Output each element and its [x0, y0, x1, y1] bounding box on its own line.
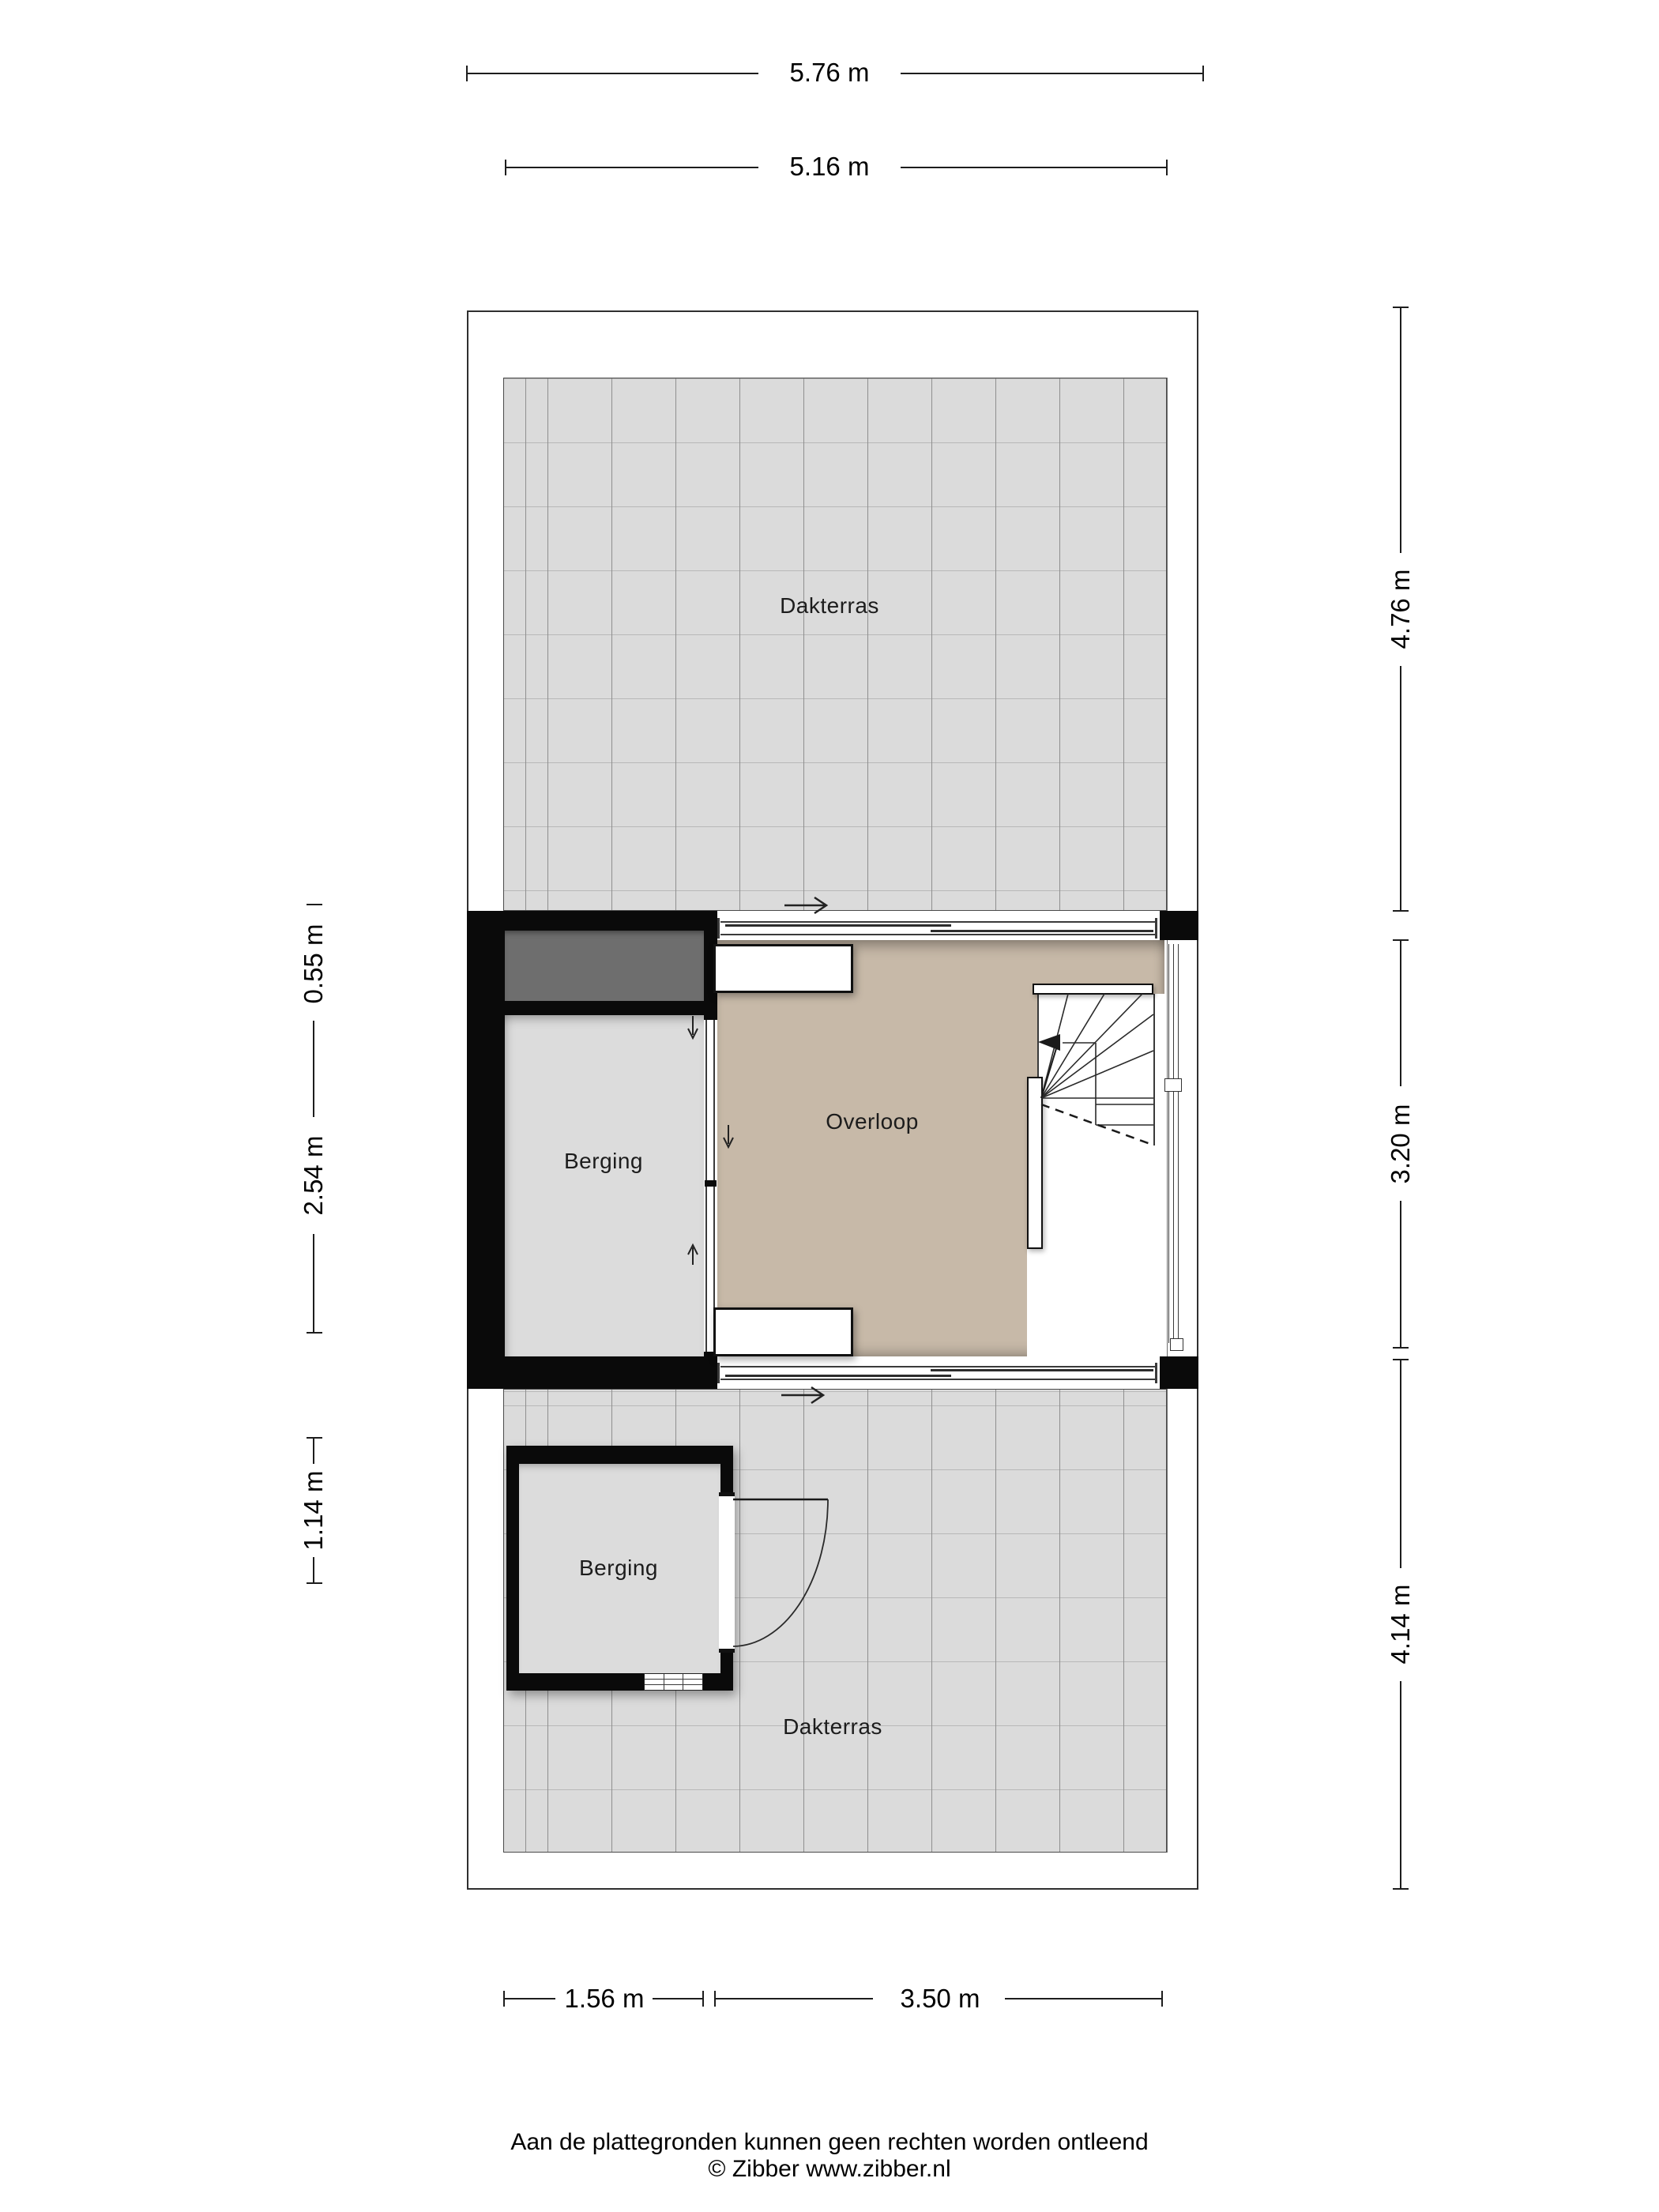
dim-top-inner-line-b [901, 167, 1167, 168]
dim-left-low-tick-top [307, 1437, 322, 1439]
dim-right-mid-label: 3.20 m [1386, 1104, 1416, 1184]
dim-right-top-tick-t [1393, 307, 1409, 308]
slidedoor-vertical-post-top [704, 1015, 717, 1020]
slidedoor-bottom-leaf-a [725, 1375, 951, 1377]
slidedoor-top-cap-l [717, 918, 720, 939]
dim-bottom-left-tick-r [702, 1991, 704, 2007]
dim-right-top-tick-b [1393, 910, 1409, 912]
floorplan-page: 5.76 m 5.16 m 4.76 m 3.20 m 4.14 m 0.55 … [0, 0, 1659, 2212]
dim-bottom-right-line-a [715, 1998, 873, 1999]
dim-right-mid-line-a [1400, 940, 1401, 1086]
window-right-line-1a [1168, 944, 1169, 1078]
door-panel-bottom [713, 1307, 853, 1356]
window-right-line-2b [1173, 1092, 1174, 1343]
dim-top-outer-line-b [901, 73, 1204, 74]
dim-top-inner-tick-l [505, 160, 506, 175]
label-dakterras-top: Dakterras [780, 593, 879, 619]
slidedoor-bottom-cap-r [1155, 1363, 1157, 1383]
stair-right-edge [1153, 994, 1155, 1145]
copyright-text: © Zibber www.zibber.nl [708, 2156, 950, 2183]
dim-top-inner-tick-r [1166, 160, 1168, 175]
dim-top-outer-tick-r [1202, 66, 1204, 81]
border-strip-line-right [1167, 378, 1168, 1853]
window-right-sill [1170, 1338, 1183, 1351]
dim-right-top-line-b [1400, 666, 1401, 911]
disclaimer-text: Aan de plattegronden kunnen geen rechten… [510, 2129, 1148, 2156]
berging-lower-door-jamb-bottom [719, 1649, 735, 1653]
dim-bottom-left-line-b [653, 1998, 704, 1999]
dim-right-bot-label: 4.14 m [1386, 1585, 1416, 1665]
stair-top-bar [1033, 984, 1153, 995]
dim-left-low-line-b [313, 1557, 314, 1582]
window-right-line-3b [1178, 1092, 1179, 1343]
label-berging-lower: Berging [579, 1556, 658, 1581]
dim-bottom-right-label: 3.50 m [901, 1984, 980, 2014]
dim-left-line-a [313, 1021, 314, 1117]
dim-right-bot-tick-t [1393, 1359, 1409, 1360]
dim-left-middle-label: 2.54 m [299, 1136, 329, 1216]
berging-lower-door-jamb-top [719, 1492, 735, 1496]
dim-right-bot-tick-b [1393, 1888, 1409, 1890]
slidedoor-top-rail-2 [720, 934, 1157, 935]
wall-middle-top-right [1160, 911, 1198, 940]
wall-band-under-niche [505, 1001, 717, 1015]
wall-middle-left [467, 911, 505, 1389]
dim-top-inner-line-a [506, 167, 758, 168]
dim-left-line-b [313, 1234, 314, 1333]
dim-bottom-right-tick-l [714, 1991, 716, 2007]
wall-middle-bottom-left [467, 1356, 717, 1389]
dim-right-mid-line-b [1400, 1201, 1401, 1348]
dim-bottom-left-line-a [504, 1998, 555, 1999]
slidedoor-bottom-cap-l [717, 1363, 720, 1383]
window-right-line-2a [1173, 944, 1174, 1078]
dim-right-top-line-a [1400, 307, 1401, 553]
dim-right-mid-tick-t [1393, 939, 1409, 941]
berging-lower-window-div1 [664, 1674, 664, 1690]
window-right-line-1b [1168, 1092, 1169, 1343]
dim-bottom-right-line-b [1005, 1998, 1163, 1999]
label-dakterras-bottom: Dakterras [783, 1714, 882, 1740]
berging-lower-window-div2 [683, 1674, 683, 1690]
berging-lower-window-line2 [645, 1684, 702, 1685]
dark-niche [505, 931, 704, 1001]
berging-lower-window-line1 [645, 1679, 702, 1680]
dim-left-lower-label: 1.14 m [299, 1471, 329, 1551]
dim-left-low-line-a [313, 1439, 314, 1464]
wall-middle-bottom-right [1160, 1356, 1198, 1389]
slidedoor-top-leaf-a [725, 924, 951, 927]
slidedoor-bottom-leaf-b [931, 1369, 1153, 1371]
dim-top-outer-label: 5.76 m [790, 58, 870, 88]
slidedoor-top-rail-1 [720, 921, 1157, 923]
slidedoor-bottom-rail-1 [720, 1366, 1157, 1367]
stair-left-edge [1037, 994, 1039, 1078]
dim-left-upper-label: 0.55 m [299, 924, 329, 1004]
dim-right-mid-tick-b [1393, 1347, 1409, 1349]
dim-right-bot-line-b [1400, 1681, 1401, 1890]
berging-middle-floor [505, 1015, 704, 1356]
stairwell [1037, 994, 1164, 1356]
window-right-line-3a [1178, 944, 1179, 1078]
dim-bottom-left-tick-l [503, 1991, 505, 2007]
dim-top-outer-line-a [467, 73, 758, 74]
slidedoor-vertical-post-mid [705, 1180, 717, 1187]
berging-lower-window [644, 1673, 703, 1691]
stair-railing [1027, 1077, 1043, 1249]
dakterras-top-tiles [503, 378, 1167, 911]
dim-left-low-tick-bottom [307, 1582, 322, 1584]
label-overloop: Overloop [826, 1109, 919, 1134]
dim-top-inner-label: 5.16 m [790, 152, 870, 182]
berging-lower-door-opening [719, 1492, 735, 1653]
dim-left-tick-bottom [307, 1332, 322, 1334]
label-berging-middle: Berging [564, 1149, 643, 1174]
dim-bottom-right-tick-r [1161, 1991, 1163, 2007]
dim-right-bot-line-a [1400, 1360, 1401, 1568]
dim-left-tick-top [307, 904, 322, 905]
window-right-mullion [1164, 1078, 1182, 1092]
dim-bottom-left-label: 1.56 m [565, 1984, 645, 2014]
door-panel-top [713, 944, 853, 993]
dim-right-top-label: 4.76 m [1386, 570, 1416, 649]
slidedoor-top-leaf-b [931, 930, 1153, 932]
stairwell-lower-strip [1027, 1249, 1045, 1356]
slidedoor-bottom-rail-2 [720, 1379, 1157, 1380]
slidedoor-top-cap-r [1155, 918, 1157, 939]
dim-top-outer-tick-l [466, 66, 468, 81]
